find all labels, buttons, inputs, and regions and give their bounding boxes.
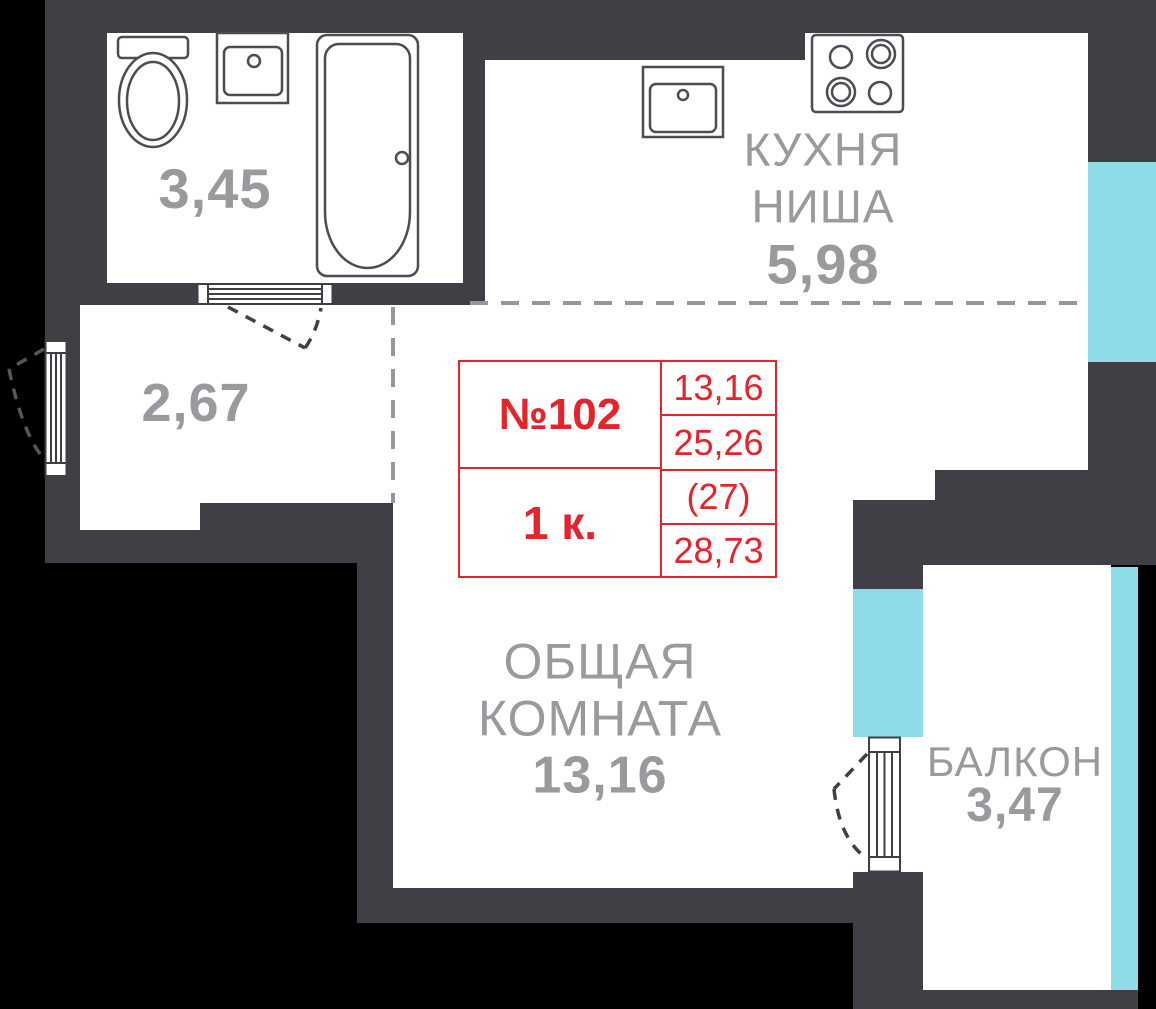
wall — [935, 470, 1088, 565]
area-hint-cell: (27) — [662, 471, 775, 525]
room-hallway-alcove — [80, 503, 200, 530]
living-area-cell: 13,16 — [662, 362, 775, 416]
unit-number-cell: №102 — [460, 362, 660, 469]
wall — [853, 872, 923, 1009]
unit-type: 1 к. — [523, 496, 597, 550]
unit-type-cell: 1 к. — [460, 469, 660, 576]
wall — [357, 563, 393, 923]
wall — [853, 565, 923, 589]
unit-table-right-column: 13,16 25,26 (27) 28,73 — [660, 362, 775, 576]
wall — [853, 500, 935, 565]
area-excl-balcony-cell: 25,26 — [662, 416, 775, 471]
living-balcony-window — [853, 589, 923, 737]
door-swing-arc — [9, 349, 44, 458]
kitchen-label: КУХНЯ НИША 5,98 — [744, 122, 903, 293]
unit-table-left-column: №102 1 к. — [460, 362, 660, 576]
floor-plan: 3,45 КУХНЯ НИША 5,98 2,67 ОБЩАЯ КОМНАТА … — [0, 0, 1156, 1009]
wall — [855, 990, 1138, 1009]
wall — [45, 305, 80, 563]
unit-number: №102 — [499, 390, 621, 440]
balcony-label: БАЛКОН 3,47 — [927, 740, 1103, 828]
unit-info-table: №102 1 к. 13,16 25,26 (27) 28,73 — [458, 360, 777, 578]
balcony-glazing — [1111, 567, 1138, 990]
kitchen-window — [1088, 162, 1156, 362]
hallway-area-label: 2,67 — [141, 375, 250, 445]
total-area-cell: 28,73 — [662, 525, 775, 576]
living-room-label: ОБЩАЯ КОМНАТА 13,16 — [478, 634, 722, 805]
wall — [393, 888, 855, 923]
balcony-door-gap — [853, 737, 923, 872]
bathroom-area-label: 3,45 — [159, 160, 272, 232]
